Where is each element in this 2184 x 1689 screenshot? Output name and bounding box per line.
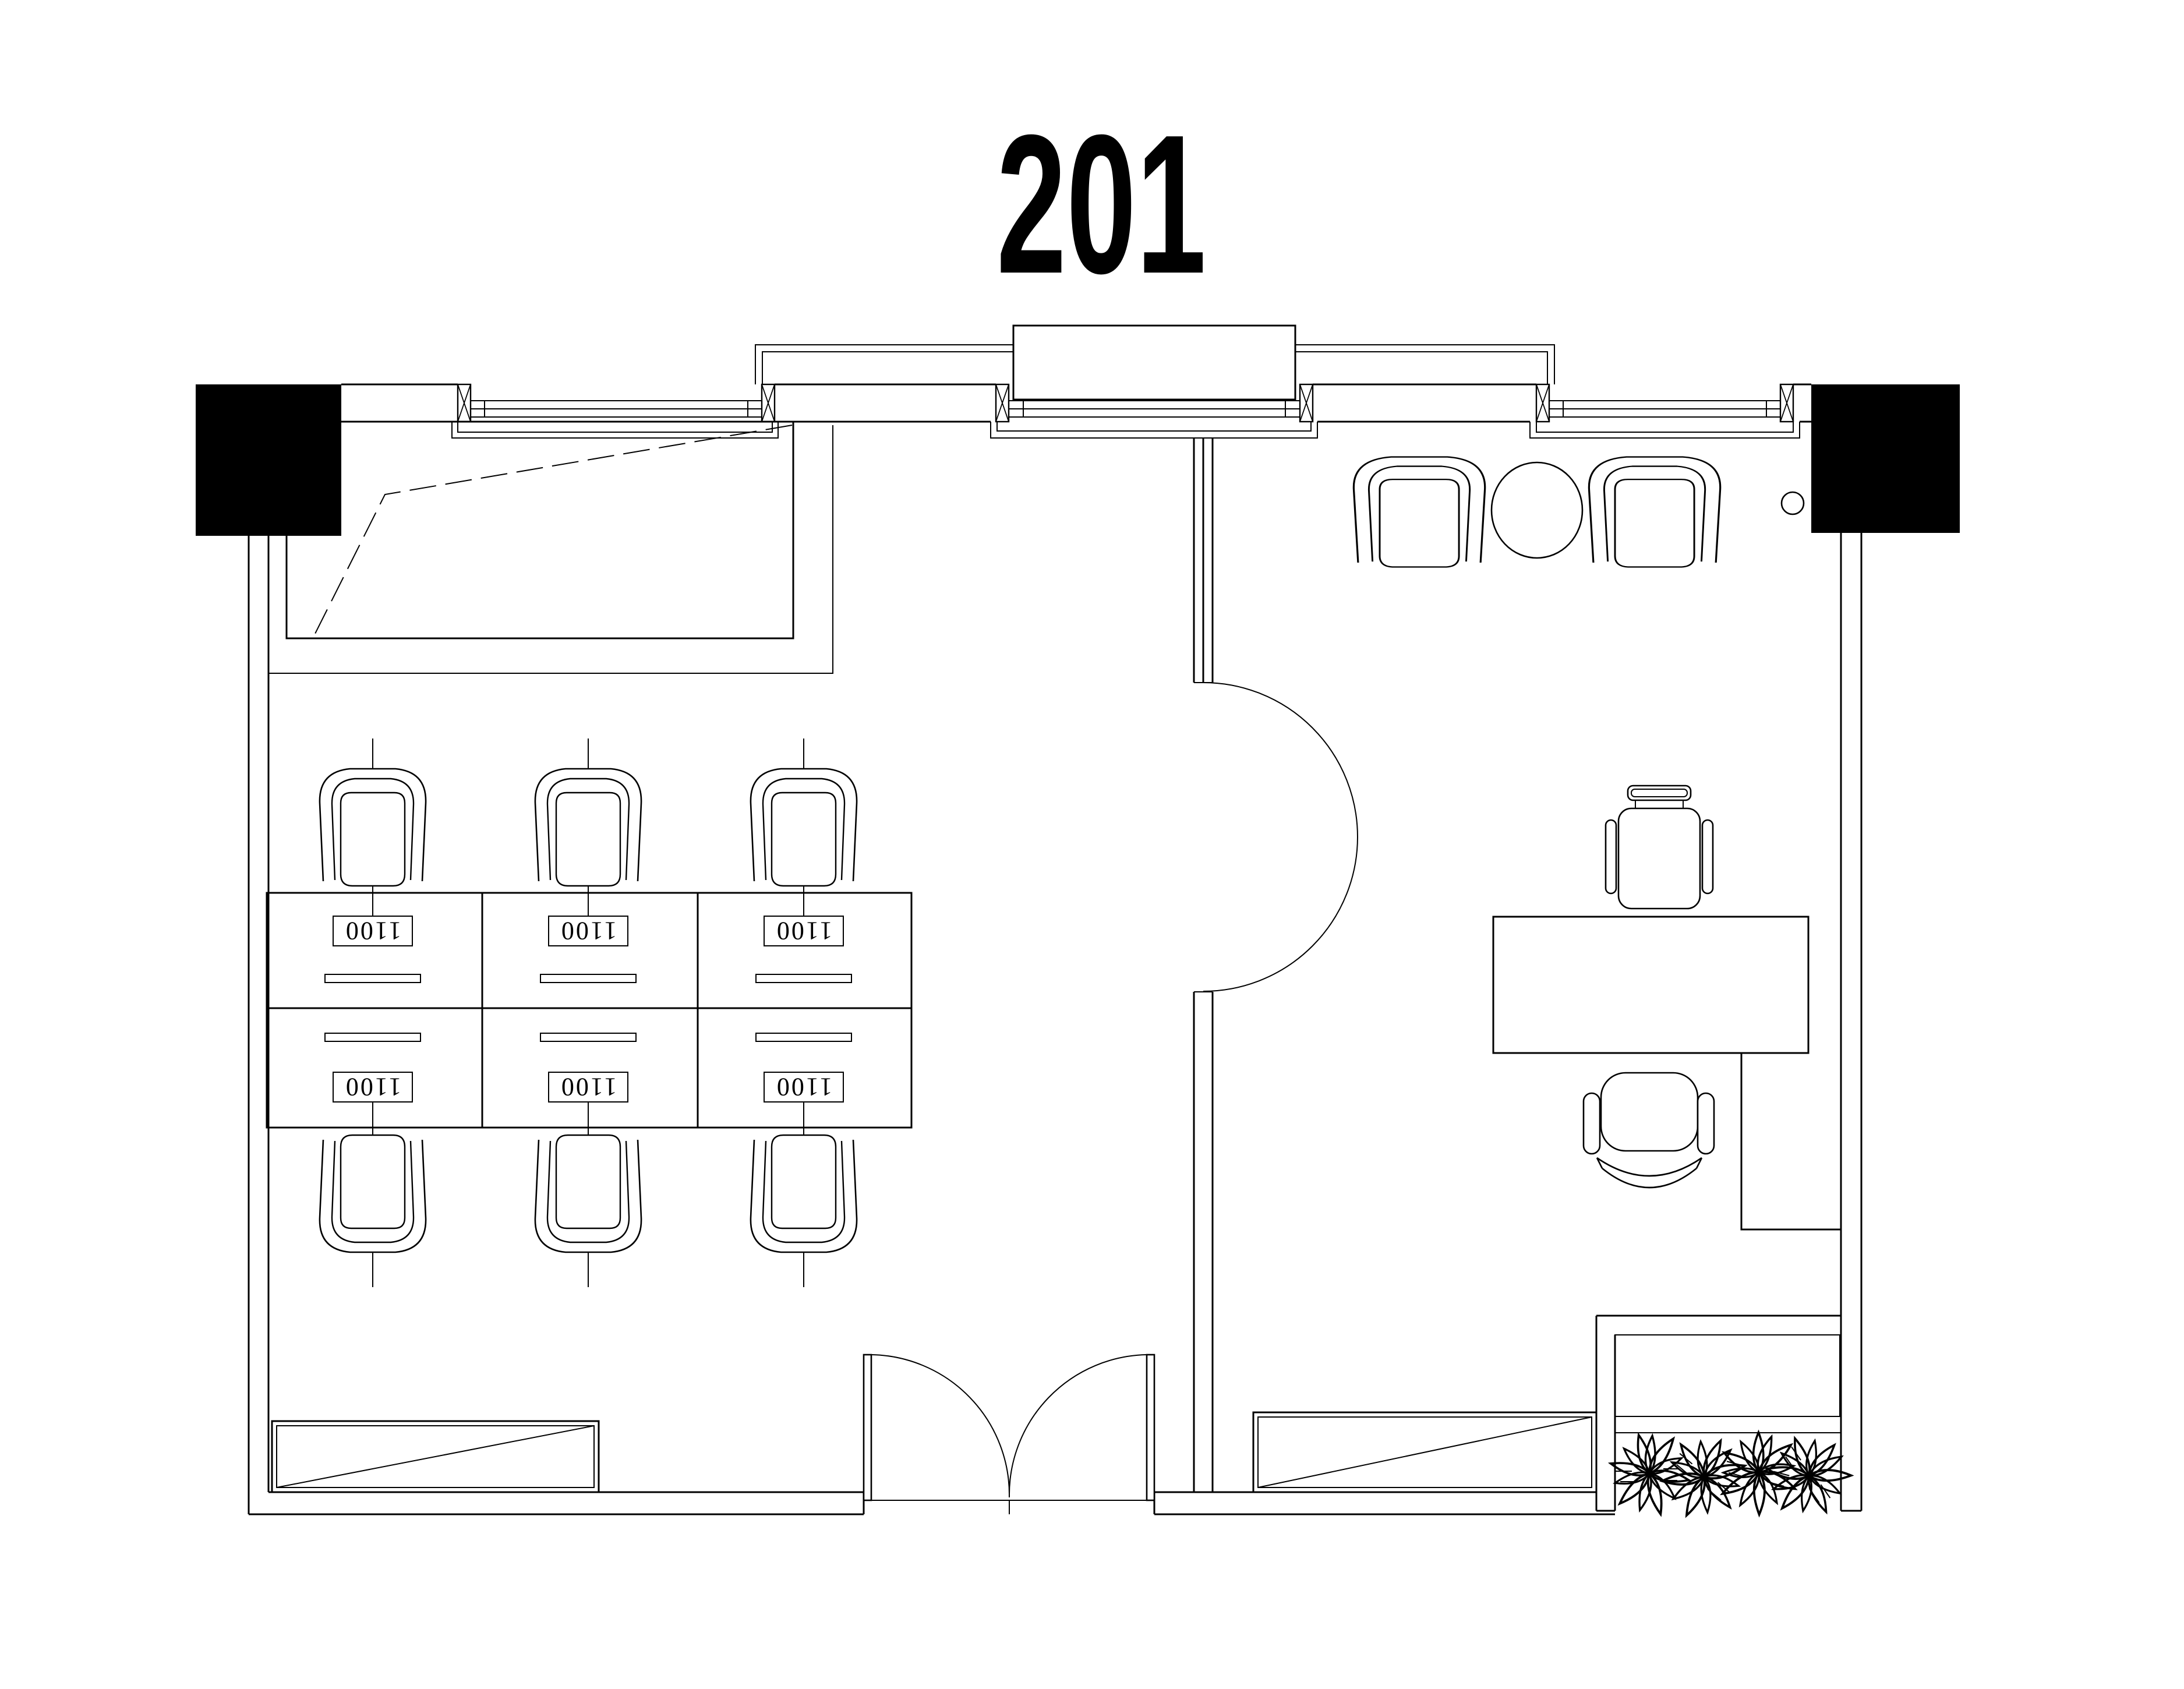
guest-chair-posts: [1635, 800, 1683, 808]
lounge-armchair-left: [1353, 457, 1485, 567]
workstation-chair: [751, 769, 857, 886]
facade-ledge-right: [1295, 345, 1554, 384]
mullion-post-icon: [1780, 384, 1793, 422]
niche-stub-wall: [1596, 1316, 1615, 1511]
workstation-cluster: 1100 1100 1100 1100 1100 1100: [267, 739, 911, 1287]
guest-chair-seat: [1618, 808, 1700, 909]
partition-upper: [1194, 438, 1213, 683]
zone-boundary-line: [268, 425, 833, 673]
desk-label-plate: 1100: [549, 1072, 628, 1102]
executive-chair-seat: [1601, 1073, 1698, 1151]
desk-label: 1100: [344, 917, 401, 945]
counter-outline: [287, 422, 793, 638]
mullion-post-icon: [996, 384, 1009, 422]
reception-counter: [287, 422, 793, 638]
desk-label-plate: 1100: [333, 916, 412, 946]
keyboard-tray: [540, 974, 636, 983]
keyboard-tray: [756, 974, 851, 983]
desk-label: 1100: [775, 917, 832, 945]
workstation-chair: [751, 1135, 857, 1252]
window-sill-recess: [1530, 422, 1800, 438]
window-sill-recess: [991, 422, 1317, 438]
storage-cabinet-left: [272, 1421, 599, 1492]
entrance-threshold: [864, 1500, 1154, 1514]
floor-plan: 201: [0, 0, 2184, 1689]
column-top-left: [196, 384, 341, 536]
glazing-lines: [471, 401, 762, 417]
plant-icon: [1709, 1424, 1808, 1523]
lounge-armchair-right: [1589, 457, 1720, 567]
storage-cabinet-right: [1253, 1412, 1596, 1492]
wall-fixture-icon: [1782, 492, 1804, 514]
cabinet-diagonal: [1258, 1417, 1592, 1487]
counter-fold-line: [314, 425, 792, 636]
workstation-chair: [320, 769, 426, 886]
plant-icon: [1752, 1421, 1864, 1533]
facade-ledge-left: [755, 345, 1013, 384]
window-sill-recess: [452, 422, 778, 438]
door-leaf-right: [1147, 1355, 1154, 1500]
executive-chair-back: [1597, 1158, 1702, 1188]
mullion-post-icon: [762, 384, 775, 422]
desk-return-cabinet: [1741, 1053, 1841, 1229]
desk-label-plate: 1100: [333, 1072, 412, 1102]
door-swing-arc-left: [871, 1355, 1009, 1497]
guest-chair-headrest: [1628, 786, 1691, 800]
executive-desk: [1493, 917, 1808, 1053]
desk-label-plate: 1100: [549, 916, 628, 946]
desk-label: 1100: [775, 1073, 832, 1101]
partition-lower: [1194, 992, 1213, 1492]
planter-plants: [1609, 1421, 1864, 1535]
desk-label: 1100: [560, 917, 617, 945]
workstation-chair: [535, 1135, 641, 1252]
window-center-bay: [991, 326, 1317, 438]
door-swing-arc-right: [1009, 1355, 1147, 1497]
cabinet-diagonal: [277, 1426, 594, 1487]
keyboard-tray: [325, 974, 420, 983]
door-leaf-left: [864, 1355, 871, 1500]
right-wall: [1841, 533, 1861, 1511]
mullion-post-icon: [1300, 384, 1313, 422]
desk-label: 1100: [344, 1073, 401, 1101]
keyboard-tray: [325, 1033, 420, 1041]
executive-chair-arm: [1584, 1093, 1600, 1154]
interior-partition: [1194, 438, 1213, 1492]
mullion-post-icon: [458, 384, 471, 422]
window-left: [452, 384, 778, 438]
lounge-area: [1353, 457, 1720, 567]
desk-label-plate: 1100: [764, 916, 843, 946]
glazing-lines: [1549, 401, 1780, 417]
room-number-title: 201: [996, 94, 1206, 315]
workstation-chair: [535, 769, 641, 886]
workstation-chair: [320, 1135, 426, 1252]
desk-label-plate: 1100: [764, 1072, 843, 1102]
executive-chair-arm: [1698, 1093, 1714, 1154]
desk-label: 1100: [560, 1073, 617, 1101]
window-right: [1530, 384, 1800, 438]
guest-chair: [1606, 786, 1713, 909]
left-wall: [249, 536, 268, 1514]
bay-projection: [1013, 326, 1295, 400]
planter-niche: [1596, 1316, 1864, 1535]
column-top-right: [1811, 384, 1960, 533]
guest-chair-arm: [1606, 820, 1616, 893]
door-jambs: [1194, 683, 1213, 992]
glazing-lines: [1009, 401, 1300, 417]
office-door-swing-arc: [1203, 683, 1358, 991]
lounge-side-table: [1492, 462, 1582, 558]
keyboard-tray: [756, 1033, 851, 1041]
niche-sill-box: [1615, 1335, 1840, 1416]
guest-chair-arm: [1702, 820, 1713, 893]
keyboard-tray: [540, 1033, 636, 1041]
bottom-wall: [249, 1492, 1615, 1514]
mullion-post-icon: [1536, 384, 1549, 422]
entrance-double-door: [864, 1355, 1154, 1500]
executive-chair: [1584, 1073, 1714, 1188]
